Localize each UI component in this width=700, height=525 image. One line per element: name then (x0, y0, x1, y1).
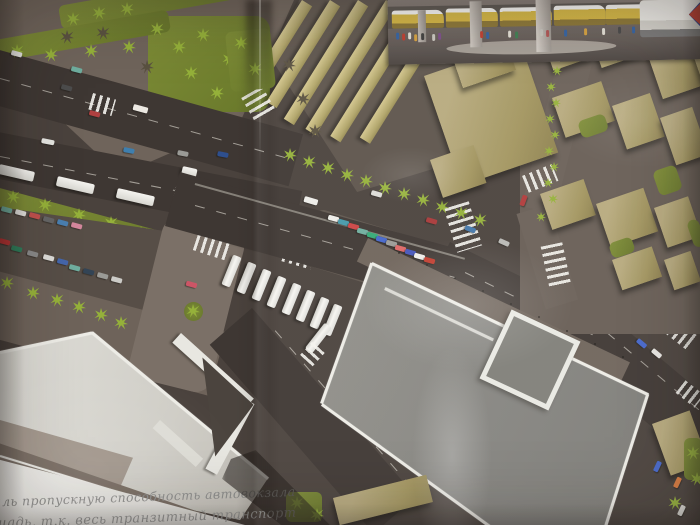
person (402, 33, 405, 40)
bollard (510, 303, 512, 305)
car (426, 217, 438, 225)
person (438, 33, 441, 40)
bollard (426, 264, 428, 266)
car (371, 190, 383, 198)
fold-sheen (236, 0, 270, 525)
person (486, 32, 489, 39)
yellow-bus (554, 5, 606, 26)
palm-tree (321, 161, 335, 175)
terminal-column (535, 0, 551, 52)
person (584, 28, 587, 35)
person (508, 31, 511, 38)
green-patch (684, 438, 700, 480)
white-coach-bus (640, 0, 700, 37)
person (432, 34, 435, 41)
van (303, 196, 318, 206)
car (653, 460, 662, 472)
person (564, 30, 567, 37)
brochure-photo: ль пропускную способность автовокзала ща… (0, 0, 700, 525)
bollard (622, 356, 624, 358)
car (673, 476, 682, 488)
bollard (454, 277, 456, 279)
bollard (566, 330, 568, 332)
bollard (594, 343, 596, 345)
person (515, 31, 518, 38)
car (498, 238, 510, 247)
person (421, 33, 424, 40)
person (540, 29, 543, 36)
bollard (482, 290, 484, 292)
person (546, 30, 549, 37)
person (480, 31, 483, 38)
palm-tree (416, 193, 430, 207)
person (408, 32, 411, 39)
person (396, 33, 399, 40)
car (677, 504, 686, 516)
bollard (398, 252, 400, 254)
bollard (538, 316, 540, 318)
person (602, 28, 605, 35)
coach-livery-red (687, 3, 700, 25)
palm-tree (397, 187, 411, 201)
person (414, 34, 417, 41)
terminal-column (470, 1, 483, 47)
person (618, 27, 621, 34)
inset-terminal-photo (387, 0, 700, 65)
person (632, 26, 635, 33)
palm-tree (302, 155, 316, 169)
